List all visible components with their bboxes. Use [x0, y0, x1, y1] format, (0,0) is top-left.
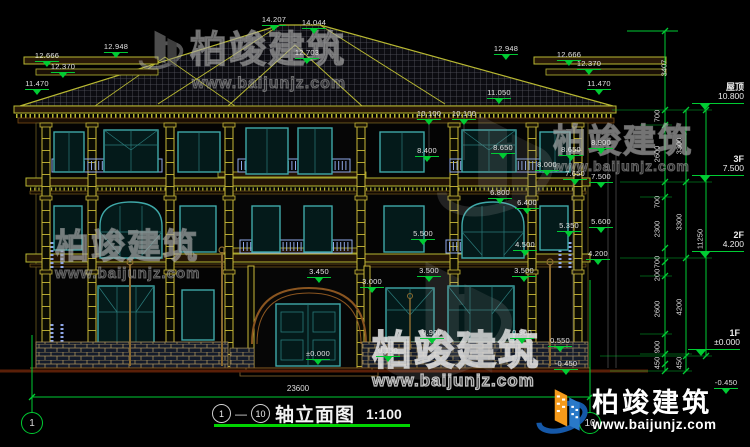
dimension-label: 3300 — [675, 214, 684, 231]
level-elevation: 4.200 — [723, 240, 744, 250]
dimension-label: 2600 — [653, 146, 662, 163]
level-triangle-icon — [696, 350, 706, 356]
dimension-label: 700 — [653, 256, 662, 269]
dimension-label: 900 — [653, 341, 662, 354]
brand-logo-text: 柏竣建筑 — [592, 390, 717, 417]
title-block: 1 — 10 轴立面图 1:100 — [212, 400, 402, 427]
cad-elevation-drawing: 柏竣建筑 www.baijunjz.com 柏竣建筑 www.baijunjz.… — [0, 0, 750, 447]
brand-logo-url: www.baijunjz.com — [592, 417, 717, 433]
axis-bubble-1: 1 — [21, 412, 43, 434]
dimension-label: 2600 — [653, 301, 662, 318]
dimension-label: 3407 — [660, 60, 669, 77]
dimension-label: 450 — [653, 357, 662, 370]
level-line — [692, 103, 744, 110]
title-axis-start-bubble: 1 — [212, 404, 231, 423]
level-elevation: 10.800 — [718, 92, 744, 102]
level-label-屋顶: 屋顶 10.800 — [688, 82, 744, 110]
dimension-label: 2300 — [653, 221, 662, 238]
level-line — [692, 175, 744, 182]
drawing-scale: 1:100 — [366, 406, 402, 422]
level-line — [692, 251, 744, 258]
dimension-label: 700 — [653, 196, 662, 209]
level-label-1F: 1F ±0.000 — [684, 328, 740, 356]
title-dash: — — [235, 407, 247, 421]
title-axis-end-bubble: 10 — [251, 404, 270, 423]
ghost-logo-icon — [435, 80, 555, 250]
total-width-dim: 23600 — [287, 384, 309, 393]
level-label-2F: 2F 4.200 — [688, 230, 744, 258]
level-elevation: ±0.000 — [714, 338, 740, 348]
roof — [14, 25, 666, 123]
level-triangle-icon — [700, 252, 710, 258]
level-triangle-icon — [700, 104, 710, 110]
ghost-logo-icon — [370, 245, 520, 395]
dimension-label: 3300 — [675, 138, 684, 155]
level-triangle-icon — [700, 176, 710, 182]
level-elevation: 7.500 — [723, 164, 744, 174]
dimension-label: 200 — [653, 269, 662, 282]
dimension-label: 700 — [653, 110, 662, 123]
level-label-3F: 3F 7.500 — [688, 154, 744, 182]
title-underline — [214, 424, 410, 427]
drawing-title: 轴立面图 — [275, 400, 355, 427]
dimension-label: 4200 — [675, 299, 684, 316]
brand-logo: 柏竣建筑 www.baijunjz.com — [536, 383, 717, 439]
level-line — [688, 349, 740, 356]
brand-logo-icon — [536, 383, 588, 439]
dimension-label: 450 — [675, 357, 684, 370]
